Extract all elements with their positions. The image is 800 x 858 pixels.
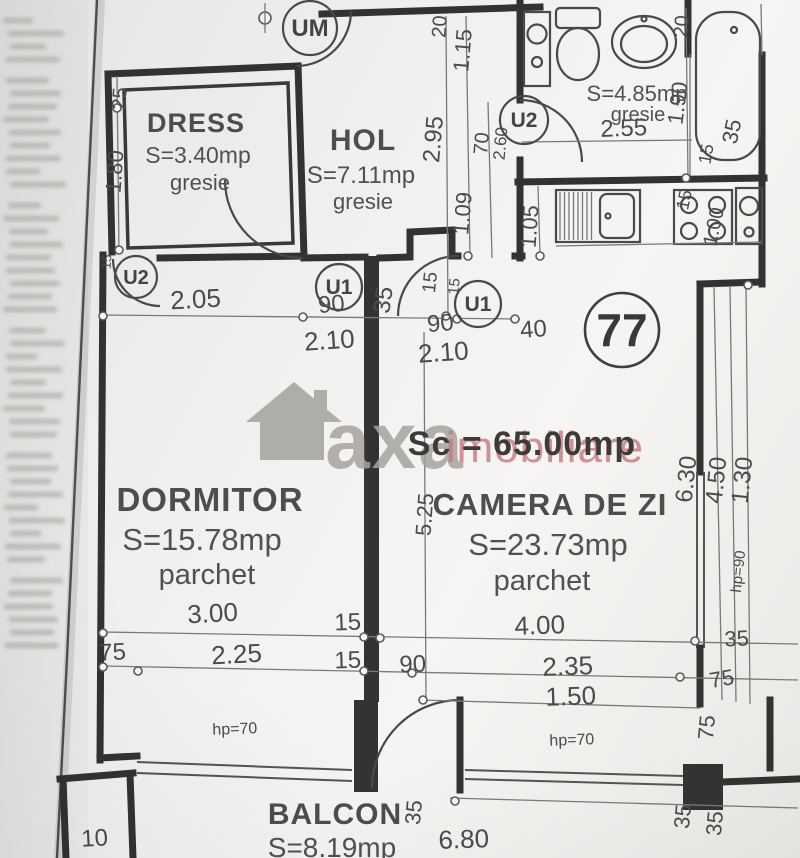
room-label-dress: DRESS S=3.40mp gresie (145, 108, 251, 195)
toilet-bowl (557, 28, 599, 80)
dimension-label: 75 (707, 664, 735, 693)
svg-text:S=23.73mp: S=23.73mp (468, 527, 627, 562)
dimension-label: 35 (400, 799, 427, 826)
dimension-label: 2.10 (417, 335, 470, 368)
floor-plan: 251.80152.05902.10351515902.1040202.951.… (0, 0, 800, 858)
dimension-label: 15 (419, 271, 442, 294)
dimension-label: 35 (669, 803, 696, 830)
dimension-label: 75 (99, 638, 127, 666)
dimension-label: 15 (334, 647, 362, 675)
toilet-tank (556, 8, 600, 28)
dimension-label: 1.30 (727, 456, 759, 505)
dimension-label: 2.10 (303, 323, 356, 356)
svg-text:parchet: parchet (159, 559, 256, 591)
svg-text:S=4.85mp: S=4.85mp (587, 81, 688, 106)
dimension-label: 90 (426, 309, 455, 338)
svg-text:U2: U2 (123, 267, 149, 289)
dimension-label: 15 (445, 277, 464, 295)
room-label-balcon: BALCON S=8.19mp (268, 798, 402, 858)
svg-text:DORMITOR: DORMITOR (116, 481, 303, 518)
door-label-u2-dress: U2 (115, 256, 157, 298)
dimension-label: 1.00 (699, 205, 729, 248)
svg-text:U1: U1 (326, 276, 353, 299)
apartment-number-badge: 77 (585, 293, 659, 367)
dimension-label: 1.09 (448, 191, 477, 236)
dimension-label: 2.60 (490, 126, 512, 161)
dimension-label: 15 (99, 254, 115, 269)
svg-text:CAMERA DE ZI: CAMERA DE ZI (433, 487, 668, 522)
dimension-label: 6.30 (671, 455, 703, 504)
page-edge (57, 0, 100, 858)
dimension-label: hp=90 (728, 550, 749, 594)
dimension-label: 2.05 (169, 283, 221, 316)
door-label-u1-camera: U1 (455, 281, 501, 327)
dimension-label: 1.15 (448, 28, 477, 73)
dimension-label: 20 (670, 14, 694, 38)
dimension-label: 15 (672, 188, 696, 212)
dimension-label: 2.35 (542, 650, 594, 682)
dimension-label: 35 (717, 117, 747, 146)
dimension-label: 35 (368, 285, 398, 315)
svg-text:HOL: HOL (330, 124, 396, 157)
svg-text:S=3.40mp: S=3.40mp (145, 142, 251, 168)
dimension-label: 2.25 (210, 638, 262, 671)
svg-text:gresie: gresie (333, 189, 393, 214)
room-label-dormitor: DORMITOR S=15.78mp parchet (116, 481, 303, 591)
svg-text:S=7.11mp: S=7.11mp (307, 162, 415, 189)
svg-text:S=8.19mp: S=8.19mp (268, 832, 396, 858)
photo-of-floor-plan-page: 251.80152.05902.10351515902.1040202.951.… (0, 0, 800, 858)
room-label-camera-de-zi: CAMERA DE ZI S=23.73mp parchet (433, 487, 668, 597)
dimension-label: 1.50 (545, 680, 597, 712)
dimension-label: 35 (724, 625, 750, 651)
svg-text:parchet: parchet (494, 565, 591, 597)
door-arc-balcony (372, 700, 460, 788)
washing-machine (524, 12, 550, 86)
svg-text:BALCON: BALCON (268, 798, 402, 831)
svg-text:U1: U1 (465, 293, 492, 316)
kitchen-fixtures (556, 188, 762, 246)
dimension-label: 90 (399, 651, 427, 679)
door-label-um: UM (283, 1, 337, 55)
total-area-label: Sc = 65.00mp (408, 425, 636, 463)
svg-text:DRESS: DRESS (147, 108, 245, 138)
dimension-label: 15 (334, 609, 362, 637)
survey-marker (259, 3, 271, 33)
svg-text:S=15.78mp: S=15.78mp (122, 522, 281, 557)
dimension-label: hp=70 (212, 720, 258, 739)
dimension-label: 10 (81, 824, 109, 852)
room-label-hol: HOL S=7.11mp gresie (307, 124, 415, 214)
door-label-u2-bathroom: U2 (500, 96, 548, 144)
dimension-label: 1.80 (101, 149, 129, 193)
dimension-label: 1.05 (516, 204, 544, 248)
svg-text:UM: UM (291, 15, 328, 42)
dimension-label: 35 (701, 810, 728, 837)
dimension-label: 2.95 (418, 115, 449, 164)
dimension-label: 6.80 (438, 823, 490, 855)
svg-text:U2: U2 (511, 109, 538, 132)
apartment-number: 77 (596, 304, 647, 356)
svg-text:gresie: gresie (611, 104, 665, 126)
dimension-label: 3.00 (186, 597, 238, 630)
svg-text:gresie: gresie (170, 170, 230, 195)
dimension-label: 4.00 (514, 609, 566, 641)
dimension-label: 20 (428, 15, 451, 39)
dimension-label: 15 (695, 142, 718, 165)
dimension-label: 75 (693, 714, 720, 741)
dimension-label: 25 (108, 87, 131, 111)
dimension-label: hp=70 (549, 731, 595, 750)
dimension-label: 40 (519, 315, 548, 344)
